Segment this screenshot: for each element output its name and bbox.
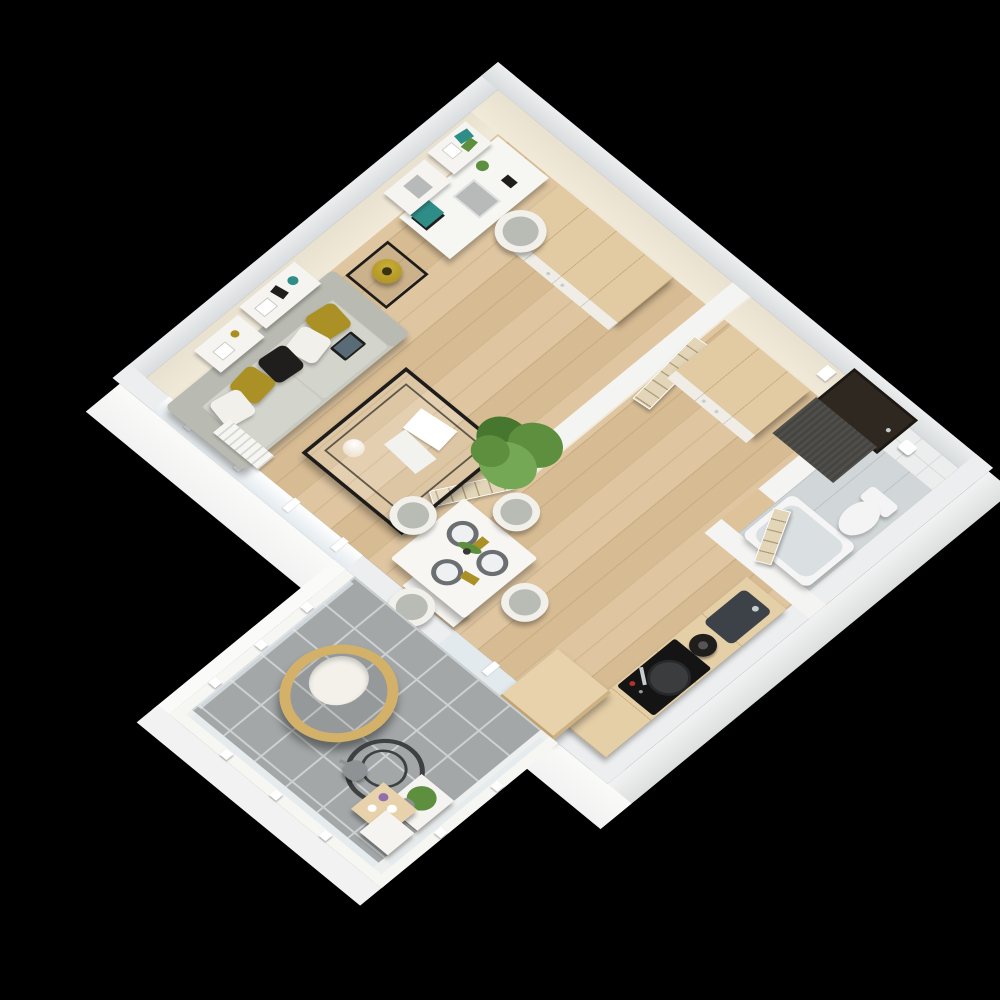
white-bottle xyxy=(378,820,391,830)
pan-handle xyxy=(639,667,647,685)
plate xyxy=(477,550,508,576)
picture-frame xyxy=(254,297,278,317)
photo-frame xyxy=(501,174,518,188)
teal-vase xyxy=(285,274,301,287)
desk-plant xyxy=(473,158,491,173)
lamp-shade-opening xyxy=(380,266,394,278)
door-handle xyxy=(885,427,892,433)
picture-frame xyxy=(212,341,235,360)
napkin-mustard xyxy=(459,570,479,585)
kettle-lid xyxy=(696,640,710,652)
cooktop-knob-red xyxy=(628,680,636,687)
chair-seat xyxy=(502,584,547,621)
chair-seat xyxy=(391,497,436,534)
gold-bowl xyxy=(229,329,242,339)
cooktop-knob xyxy=(638,689,644,694)
plate xyxy=(432,559,463,585)
chair-seat xyxy=(494,493,539,530)
laptop xyxy=(453,179,501,218)
floor-plan-render xyxy=(0,0,1000,1000)
apartment xyxy=(113,62,993,784)
purple-candle xyxy=(376,791,390,803)
brass-lamp xyxy=(366,254,408,289)
chair-cushion xyxy=(297,646,380,714)
book xyxy=(441,142,462,159)
black-decor xyxy=(270,285,289,299)
desk-chair-seat xyxy=(495,210,546,252)
stored-laptop xyxy=(403,174,433,198)
white-vase xyxy=(366,803,379,813)
